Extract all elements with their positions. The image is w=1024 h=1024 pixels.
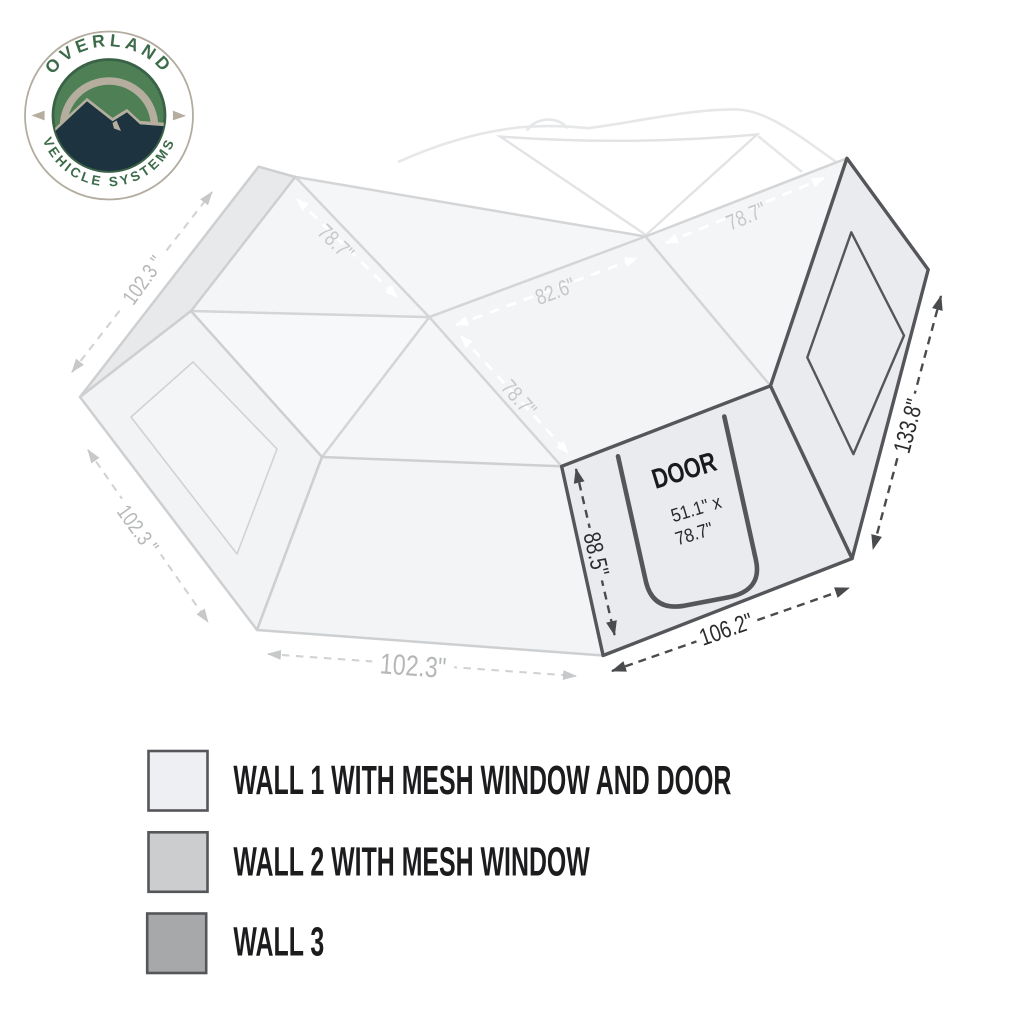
- svg-text:WALL 3: WALL 3: [233, 921, 324, 966]
- svg-text:WALL 1 WITH MESH WINDOW AND DO: WALL 1 WITH MESH WINDOW AND DOOR: [233, 759, 731, 804]
- svg-text:WALL 2 WITH MESH WINDOW: WALL 2 WITH MESH WINDOW: [233, 840, 590, 885]
- svg-text:102.3": 102.3": [379, 647, 448, 685]
